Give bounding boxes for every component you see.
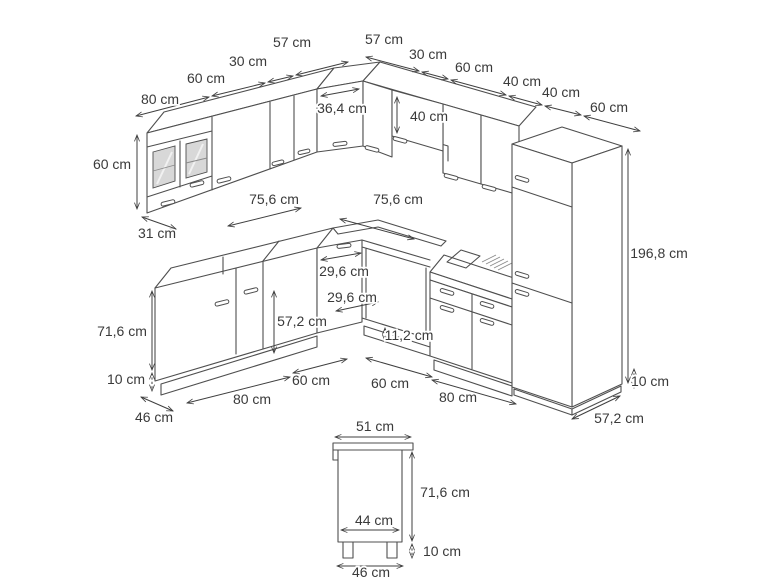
dim-wall-top-80: 80 cm (141, 91, 179, 107)
dim-base-depth-46: 46 cm (135, 409, 173, 425)
dim-single-depth-46: 46 cm (352, 564, 390, 578)
dim-single-width-51: 51 cm (356, 418, 394, 434)
dim-hood-height-40: 40 cm (410, 108, 448, 124)
dim-worktop-756-left: 75,6 cm (249, 191, 299, 207)
dim-wall-top-30-right: 30 cm (409, 46, 447, 62)
dim-base-60-right: 60 cm (371, 375, 409, 391)
dim-corner-wall-364: 36,4 cm (317, 100, 367, 116)
dim-single-inner-44: 44 cm (355, 512, 393, 528)
dim-wall-top-40-a: 40 cm (503, 73, 541, 89)
dim-base-60-left: 60 cm (292, 372, 330, 388)
wall-right-door-40a (443, 104, 481, 184)
dim-tall-depth-572: 57,2 cm (594, 410, 644, 426)
dim-single-height-716: 71,6 cm (420, 484, 470, 500)
dim-tall-height-1968: 196,8 cm (630, 245, 688, 261)
corner-front-face (317, 81, 363, 152)
dim-wall-top-57-right: 57 cm (365, 31, 403, 47)
wall-cabinets-left-run (147, 68, 334, 213)
dim-plinth-10-left: 10 cm (107, 371, 145, 387)
single-carcass (338, 450, 402, 542)
dim-base-80-right: 80 cm (439, 389, 477, 405)
dim-wall-top-40-b: 40 cm (542, 84, 580, 100)
single-worktop (333, 443, 413, 450)
dim-base-height-716: 71,6 cm (97, 323, 147, 339)
dim-wall-depth-31: 31 cm (138, 225, 176, 241)
dim-base-door-572: 57,2 cm (277, 313, 327, 329)
dim-corner-296-a: 29,6 cm (319, 263, 369, 279)
dim-wall-top-57-left: 57 cm (273, 34, 311, 50)
single-cabinet-side-view (333, 443, 413, 558)
dim-wall-height-60: 60 cm (93, 156, 131, 172)
dim-wall-top-30-left: 30 cm (229, 53, 267, 69)
tall-larder-unit (512, 127, 622, 415)
sink-drainer-grooves (482, 255, 512, 270)
kitchen-dimension-drawing: 80 cm 60 cm 30 cm 57 cm 57 cm 30 cm 60 c… (0, 0, 770, 578)
dim-worktop-756-right: 75,6 cm (373, 191, 423, 207)
drawing-canvas: 80 cm 60 cm 30 cm 57 cm 57 cm 30 cm 60 c… (0, 0, 770, 578)
base-cabinets-right-run (362, 240, 526, 396)
dim-base-80-left: 80 cm (233, 391, 271, 407)
dim-plinth-10-right: 10 cm (631, 373, 669, 389)
single-foot-left (343, 542, 353, 558)
dim-single-feet-10: 10 cm (423, 543, 461, 559)
dim-wall-top-60-left: 60 cm (187, 70, 225, 86)
dim-wall-top-60-far: 60 cm (590, 99, 628, 115)
tall-side-face (572, 146, 622, 407)
single-foot-right (387, 542, 397, 558)
dim-wall-top-60-right: 60 cm (455, 59, 493, 75)
dim-oven-plinth-112: 11,2 cm (385, 327, 434, 343)
dim-corner-296-b: 29,6 cm (327, 289, 377, 305)
